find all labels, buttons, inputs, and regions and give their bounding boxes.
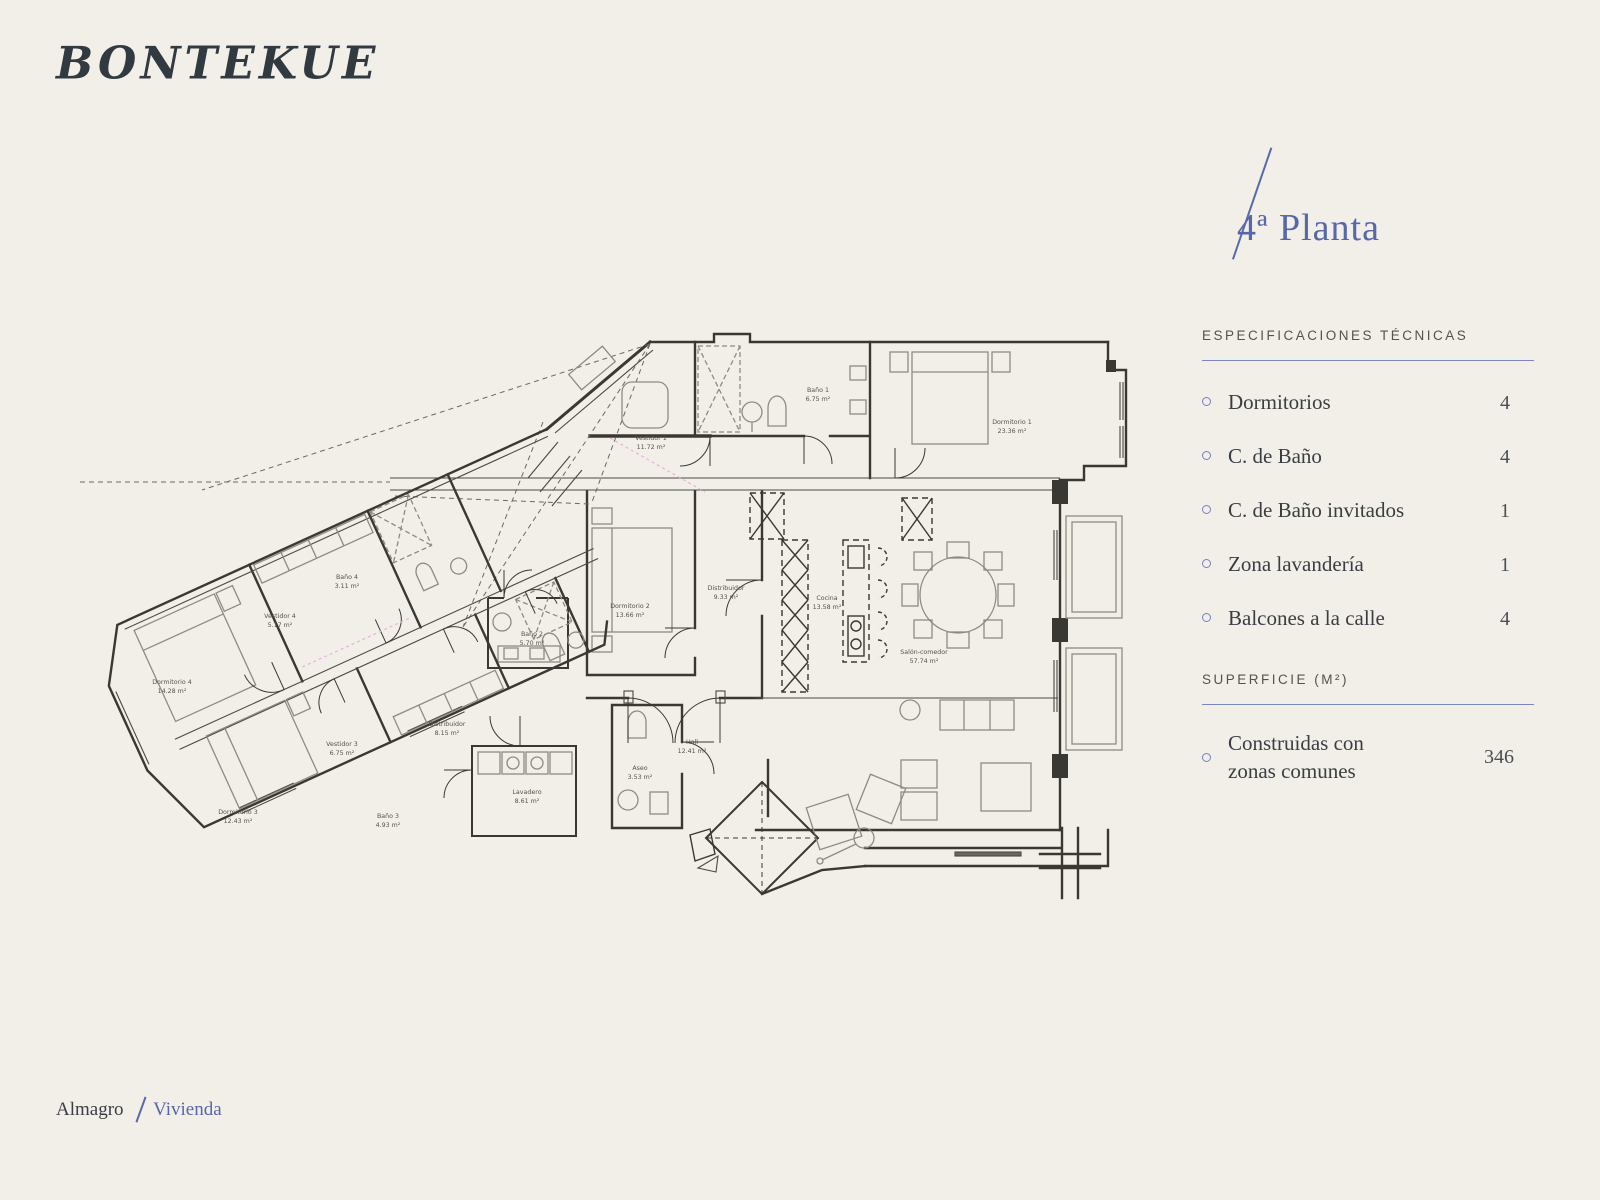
floorplan: Vestidor 1 11.72 m² Baño 1 6.75 m² Dormi…: [50, 330, 1130, 930]
balconies: [1066, 516, 1122, 750]
left-wing-doors: [244, 544, 558, 735]
brand-logo: BONTEKUE: [56, 37, 379, 89]
spec-row-banos: C. de Baño 4: [1202, 444, 1534, 469]
bullet-icon: [1202, 451, 1211, 460]
spec-row-banos-invitados: C. de Baño invitados 1: [1202, 498, 1534, 523]
floorplan-drawing: Vestidor 1 11.72 m² Baño 1 6.75 m² Dormi…: [50, 330, 1130, 930]
room-label: Baño 3: [377, 813, 399, 820]
spec-label: C. de Baño invitados: [1228, 498, 1500, 523]
bullet-icon: [1202, 397, 1211, 406]
room-label: Distribuidor: [429, 721, 466, 728]
footer-location: Almagro: [56, 1099, 124, 1121]
specs-panel: ESPECIFICACIONES TÉCNICAS Dormitorios 4 …: [1202, 328, 1534, 631]
specs-heading: ESPECIFICACIONES TÉCNICAS: [1202, 328, 1534, 361]
room-label: Baño 1: [807, 387, 829, 394]
room-label: Cocina: [816, 595, 837, 602]
room-label: Vestidor 4: [264, 613, 296, 620]
surface-panel: SUPERFICIE (M²) Construidas con zonas co…: [1202, 672, 1534, 786]
room-area: 4.93 m²: [376, 822, 401, 829]
room-area: 8.15 m²: [435, 730, 460, 737]
footer-category: Vivienda: [153, 1099, 222, 1121]
surface-label-line1: Construidas con: [1228, 731, 1364, 755]
room-area: 57.74 m²: [910, 658, 939, 665]
room-label: Baño 4: [336, 574, 358, 581]
room-area: 12.43 m²: [224, 818, 253, 825]
spec-value: 4: [1500, 392, 1534, 415]
room-label: Dormitorio 2: [610, 603, 650, 610]
room-label: Lavadero: [512, 789, 541, 796]
room-label: Hall: [686, 739, 698, 746]
room-area: 5.17 m²: [268, 622, 293, 629]
room-label: Dormitorio 3: [218, 809, 258, 816]
kitchen-units: [750, 493, 932, 692]
left-wing: [87, 430, 637, 842]
surface-label: Construidas con zonas comunes: [1228, 729, 1484, 786]
bullet-icon: [1202, 753, 1211, 762]
spec-value: 4: [1500, 608, 1534, 631]
bullet-icon: [1202, 613, 1211, 622]
bullet-icon: [1202, 505, 1211, 514]
surface-value: 346: [1484, 746, 1534, 769]
room-label: Baño 2: [521, 631, 543, 638]
room-area: 6.75 m²: [806, 396, 831, 403]
spec-label: Dormitorios: [1228, 390, 1500, 415]
pillars: [1052, 360, 1116, 778]
room-label: Salón-comedor: [900, 648, 948, 656]
spec-value: 1: [1500, 500, 1534, 523]
courtyard-dashed-lines: [80, 344, 650, 627]
room-label: Aseo: [632, 765, 647, 772]
room-area: 13.58 m²: [813, 604, 842, 611]
footer-slash-icon: [135, 1097, 146, 1123]
room-label: Vestidor 3: [326, 741, 358, 748]
spec-label: Balcones a la calle: [1228, 606, 1500, 631]
room-label: Distribuidor: [708, 585, 745, 592]
spec-label: Zona lavandería: [1228, 552, 1500, 577]
room-label: Vestidor 1: [635, 435, 667, 442]
footer-breadcrumb: Almagro Vivienda: [56, 1096, 222, 1123]
room-area: 14.28 m²: [158, 688, 187, 695]
room-area: 3.11 m²: [335, 583, 360, 590]
room-area: 23.36 m²: [998, 428, 1027, 435]
room-label: Dormitorio 1: [992, 419, 1032, 426]
bullet-icon: [1202, 559, 1211, 568]
room-area: 11.72 m²: [637, 444, 666, 451]
spec-value: 1: [1500, 554, 1534, 577]
room-area: 5.70 m²: [520, 640, 545, 647]
room-area: 13.66 m²: [616, 612, 645, 619]
spec-row-balcones: Balcones a la calle 4: [1202, 606, 1534, 631]
room-area: 6.75 m²: [330, 750, 355, 757]
surface-label-line2: zonas comunes: [1228, 759, 1356, 783]
furniture: [478, 346, 1031, 864]
spec-value: 4: [1500, 446, 1534, 469]
spec-row-dormitorios: Dormitorios 4: [1202, 390, 1534, 415]
spec-label: C. de Baño: [1228, 444, 1500, 469]
room-area: 12.41 m²: [678, 748, 707, 755]
room-label: Dormitorio 4: [152, 679, 192, 686]
surface-row: Construidas con zonas comunes 346: [1202, 729, 1534, 786]
room-area: 8.61 m²: [515, 798, 540, 805]
room-area: 3.53 m²: [628, 774, 653, 781]
spec-row-lavanderia: Zona lavandería 1: [1202, 552, 1534, 577]
surface-heading: SUPERFICIE (M²): [1202, 672, 1534, 705]
floor-title: 4ª Planta: [1237, 206, 1380, 250]
room-area: 9.33 m²: [714, 594, 739, 601]
